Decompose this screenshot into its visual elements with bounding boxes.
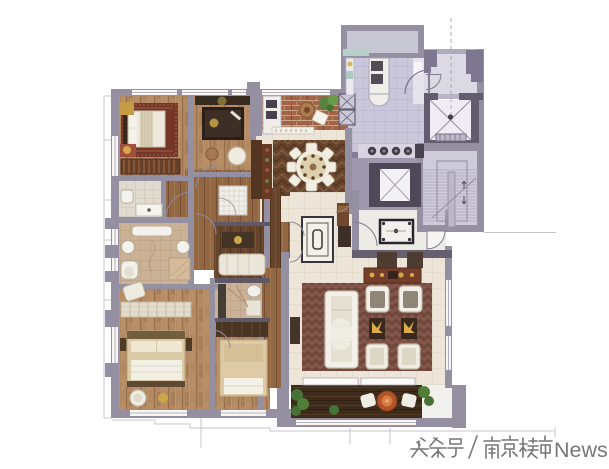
svg-text:News: News xyxy=(554,438,608,462)
